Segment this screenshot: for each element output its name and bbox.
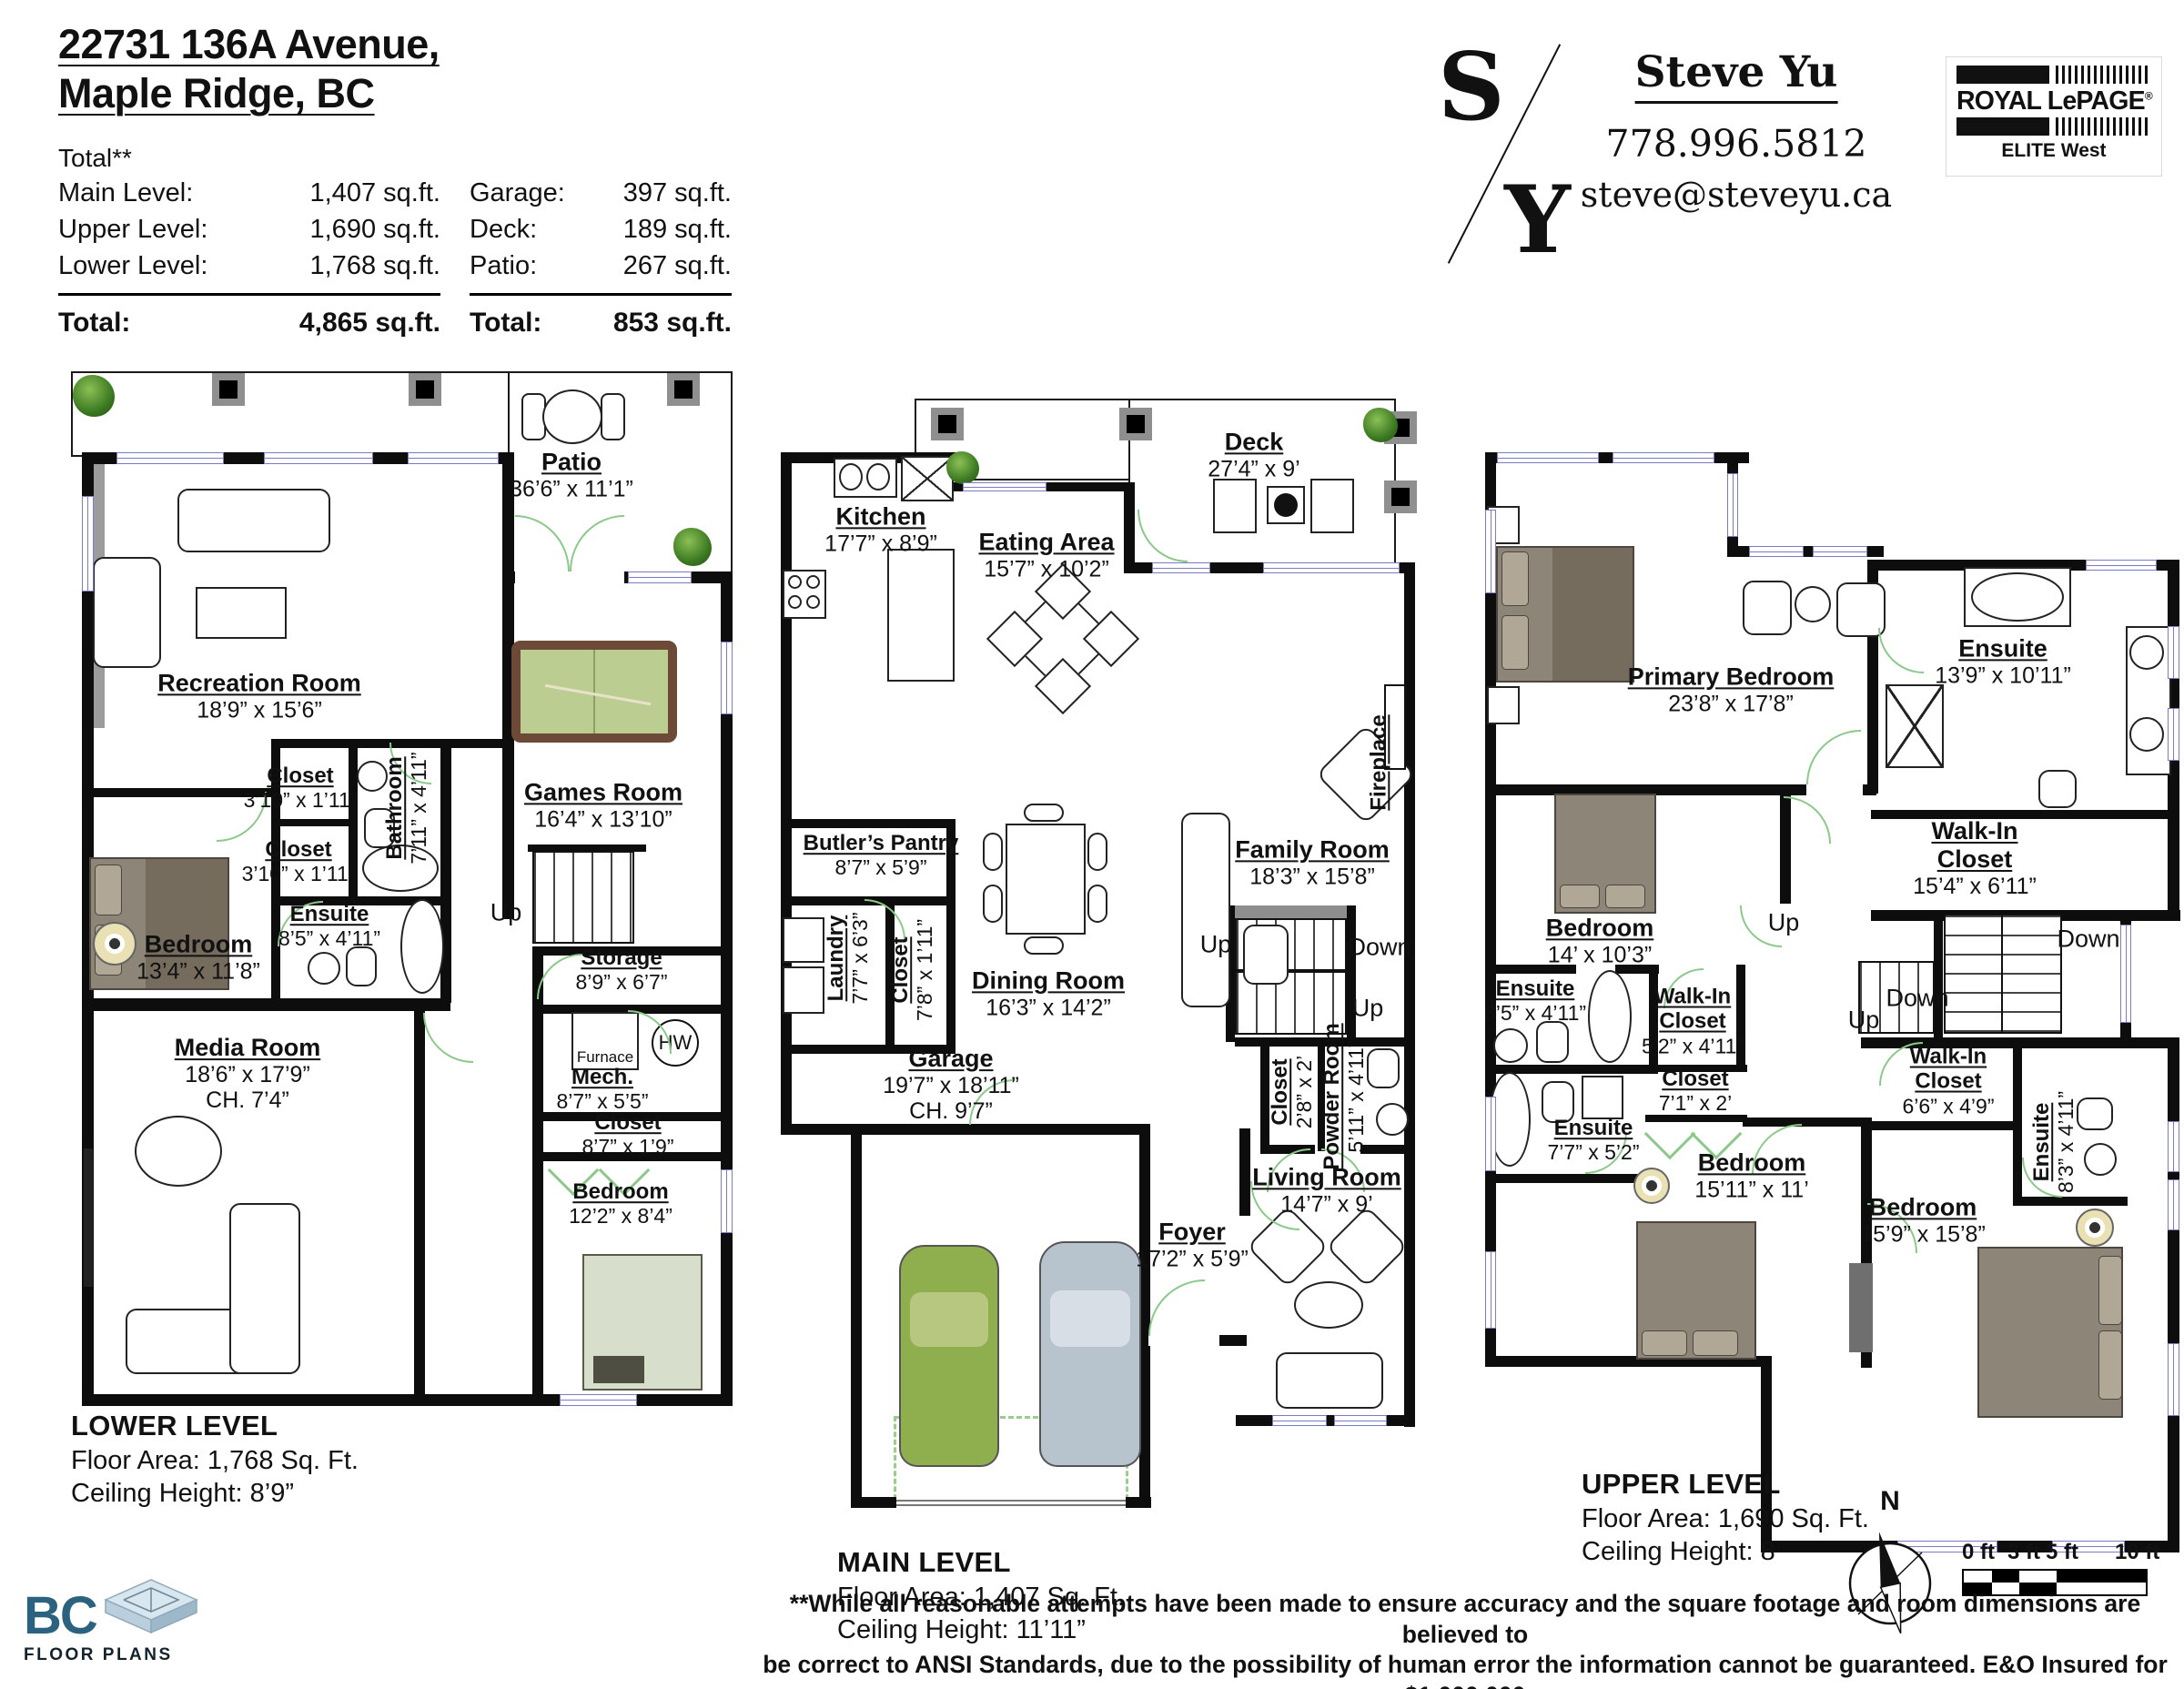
- window: [116, 452, 224, 464]
- window: [721, 1169, 733, 1233]
- coffee-table: [196, 587, 287, 639]
- level-title: LOWER LEVEL: [71, 1409, 359, 1444]
- window: [2168, 1121, 2179, 1172]
- logo-bar: [1956, 66, 2049, 84]
- window: [963, 482, 1046, 491]
- window: [2168, 1343, 2179, 1416]
- room-label-family-room: Family Room18’3” x 15’8”: [1235, 835, 1390, 889]
- row-value: 1,768 sq.ft.: [310, 251, 441, 281]
- fire-table-center: [1274, 493, 1298, 517]
- wardrobe: [1849, 1263, 1873, 1352]
- coffee-table: [1294, 1281, 1363, 1329]
- patio-chair: [601, 393, 625, 440]
- stair-landing: [1235, 905, 1347, 918]
- level-title: UPPER LEVEL: [1582, 1467, 1869, 1502]
- total-label: Total:: [58, 308, 130, 339]
- row-value: 189 sq.ft.: [623, 215, 732, 245]
- room-label-patio: Patio36’6” x 11’1”: [510, 448, 633, 501]
- toilet: [1367, 1048, 1400, 1088]
- window: [408, 452, 499, 464]
- sink-basin: [839, 463, 863, 491]
- stair-label-up: Up: [1768, 909, 1800, 937]
- room-label-walk-in-closet: Walk-In Closet5’2” x 4’11”: [1634, 985, 1751, 1058]
- deck-chair: [1213, 479, 1257, 533]
- room-label-games-room: Games Room16’4” x 13’10”: [524, 778, 682, 832]
- garage-door: [896, 1504, 1126, 1506]
- disclaimer: **While all reasonable attempts have bee…: [753, 1589, 2177, 1689]
- washer: [783, 966, 824, 1014]
- row-label: Patio:: [470, 251, 537, 281]
- room-label-bedroom: Bedroom14’ x 10’3”: [1546, 914, 1654, 967]
- window: [2168, 1179, 2179, 1230]
- window: [1485, 1097, 1496, 1171]
- toilet: [2038, 770, 2077, 808]
- wall: [414, 1085, 425, 1394]
- room-label-living-room: Living Room14’7” x 9’: [1252, 1163, 1401, 1217]
- room-label-bedroom: Bedroom15’11” x 11’: [1694, 1148, 1809, 1202]
- room-label-media-room: Media Room18’6” x 17’9”CH. 7’4”: [175, 1034, 321, 1114]
- room-label-ensuite: Ensuite13’9” x 10’11”: [1935, 634, 2071, 688]
- window: [1485, 510, 1496, 593]
- window: [1613, 452, 1714, 463]
- agent-monogram: S Y: [1436, 42, 1574, 268]
- table-row: Patio:267 sq.ft.: [470, 251, 732, 281]
- burner: [806, 575, 820, 589]
- ceiling-light-icon: [1633, 1168, 1670, 1204]
- wall: [271, 819, 355, 826]
- pillow: [1501, 615, 1529, 670]
- shower: [1886, 684, 1944, 768]
- wall: [1871, 1121, 2017, 1130]
- wall: [82, 998, 450, 1011]
- room-label-closet: Closet2’8” x 2’: [1268, 1056, 1317, 1129]
- window: [2120, 925, 2131, 1023]
- sink-basin: [866, 463, 890, 491]
- wall: [414, 998, 425, 1085]
- plant-icon: [673, 528, 712, 566]
- tv: [84, 1148, 93, 1287]
- window: [1497, 452, 1599, 463]
- table-total-row: Total:853 sq.ft.: [470, 293, 732, 339]
- stair-rail: [2001, 914, 2003, 1034]
- logo-bars: [1956, 66, 2151, 84]
- room-label-closet: Closet8’7” x 1’9”: [582, 1110, 674, 1159]
- door-opening: [1148, 1335, 1219, 1346]
- ottoman: [1243, 925, 1289, 985]
- door-arc: [1784, 796, 1831, 844]
- bc-floorplans-logo: BC FLOOR PLANS: [24, 1573, 206, 1665]
- wall: [1124, 482, 1135, 573]
- bed-blanket: [1552, 548, 1633, 681]
- pillow: [1501, 551, 1529, 606]
- room-label-recreation-room: Recreation Room18’9” x 15’6”: [157, 669, 361, 723]
- wall: [851, 1124, 862, 1508]
- floor-plan-sheet: 22731 136A Avenue, Maple Ridge, BC Total…: [0, 0, 2184, 1689]
- room-label-closet: Closet7’8” x 1’11”: [888, 919, 937, 1021]
- window: [2168, 626, 2179, 679]
- scale-row: [1964, 1571, 2146, 1583]
- room-label-deck: Deck27’4” x 9’: [1208, 428, 1299, 481]
- stair-label-down: Down: [1886, 985, 1948, 1013]
- agent-email: steve@steveyu.ca: [1581, 175, 1892, 215]
- wall: [1934, 910, 1943, 1037]
- bc-logo-text: BC: [24, 1585, 96, 1646]
- patio-table: [542, 389, 602, 444]
- pillow: [1693, 1330, 1738, 1356]
- stair-label-down: Down: [2057, 925, 2119, 954]
- level-ceiling-height: Ceiling Height: 8’9”: [71, 1477, 359, 1510]
- garage-door: [896, 1500, 1126, 1502]
- scale-label: 5 ft: [2046, 1540, 2078, 1565]
- scale-cell: [2019, 1571, 2057, 1583]
- row-label: Upper Level:: [58, 215, 207, 245]
- row-value: 1,690 sq.ft.: [310, 215, 441, 245]
- row-label: Lower Level:: [58, 251, 207, 281]
- burner: [788, 595, 802, 609]
- wall: [1485, 1174, 1653, 1183]
- monogram-y: Y: [1504, 166, 1571, 275]
- window: [82, 496, 94, 592]
- toilet: [2077, 1097, 2113, 1130]
- registered-mark: ®: [2145, 90, 2152, 103]
- wall: [2168, 1037, 2179, 1552]
- room-label-bathroom: Bathroom7’11” x 4’11”: [382, 752, 431, 864]
- sofa: [93, 557, 161, 668]
- side-table: [1795, 586, 1831, 622]
- ceiling-light-icon: [2076, 1209, 2114, 1247]
- laundry-sink: [783, 917, 824, 963]
- scale-label: 3 ft: [2007, 1540, 2040, 1565]
- door-arc: [1878, 628, 1924, 673]
- total-note: Total**: [58, 144, 132, 173]
- chair: [1024, 804, 1064, 822]
- room-label-walk-in-closet: Walk-In Closet15’4” x 6’11”: [1902, 817, 2047, 899]
- patio-post: [667, 373, 700, 406]
- window: [1485, 1251, 1496, 1329]
- stair-label-up: Up: [1352, 995, 1384, 1023]
- table-row: Deck:189 sq.ft.: [470, 215, 732, 245]
- door-arc: [1806, 730, 1861, 784]
- table-row: Upper Level:1,690 sq.ft.: [58, 215, 440, 245]
- room-label-powder-room: Powder Room5’11” x 4’11”: [1319, 1023, 1369, 1169]
- room-label-bedroom: Bedroom15’9” x 15’8”: [1860, 1193, 1986, 1247]
- burner: [788, 575, 802, 589]
- pillow: [95, 865, 122, 915]
- room-label-butlers-pantry: Butler’s Pantry8’7” x 5’9”: [804, 831, 959, 880]
- door-arc: [628, 1010, 672, 1054]
- bc-logo-graphic: BC: [24, 1573, 206, 1645]
- room-label-ensuite: Ensuite8’5” x 4’11”: [278, 902, 380, 951]
- disclaimer-line: be correct to ANSI Standards, due to the…: [753, 1650, 2177, 1689]
- row-value: 397 sq.ft.: [623, 178, 732, 208]
- row-label: Deck:: [470, 215, 537, 245]
- sofa: [1181, 813, 1230, 1007]
- car-grey: [1039, 1241, 1141, 1467]
- window: [628, 571, 692, 583]
- brokerage-name: ROYAL LePAGE®: [1956, 86, 2151, 116]
- nightstand: [1487, 686, 1520, 724]
- pool-table-line: [593, 650, 595, 733]
- room-label-garage: Garage19’7” x 18’11”CH. 9’7”: [883, 1045, 1019, 1125]
- total-value: 4,865 sq.ft.: [299, 308, 440, 339]
- table-total-row: Total:4,865 sq.ft.: [58, 293, 440, 339]
- room-label-foyer: Foyer17’2” x 5’9”: [1136, 1218, 1249, 1271]
- pillow: [1560, 885, 1600, 908]
- armchair: [1743, 581, 1792, 635]
- wall: [2013, 1037, 2022, 1203]
- window: [1152, 562, 1210, 573]
- sectional-sofa: [229, 1203, 300, 1374]
- chair: [1087, 833, 1107, 871]
- window: [2168, 708, 2179, 761]
- sink: [2129, 717, 2164, 752]
- window: [264, 452, 373, 464]
- row-label: Main Level:: [58, 178, 193, 208]
- sink: [2129, 635, 2164, 670]
- room-label-mech: Mech.8’7” x 5’5”: [557, 1065, 649, 1114]
- room-label-kitchen: Kitchen17’7” x 8’9”: [824, 502, 937, 556]
- chair: [1087, 885, 1107, 923]
- car-windshield: [910, 1292, 988, 1347]
- window: [1334, 1415, 1387, 1426]
- room-label-eating-area: Eating Area15’7” x 10’2”: [978, 528, 1114, 582]
- brokerage-office: ELITE West: [1956, 140, 2151, 162]
- level-title: MAIN LEVEL: [837, 1545, 1125, 1581]
- plant-icon: [73, 375, 115, 417]
- deck-chair: [1310, 479, 1354, 533]
- room-label-ensuite: Ensuite7’7” x 5’2”: [1548, 1116, 1640, 1165]
- room-label-ensuite: Ensuite8’3” x 4’11”: [2029, 1091, 2078, 1193]
- chair: [983, 833, 1003, 871]
- loveseat: [1276, 1352, 1383, 1409]
- stair-label-up: Up: [1200, 931, 1232, 959]
- dining-table: [1006, 824, 1086, 935]
- room-label-bedroom: Bedroom12’2” x 8’4”: [569, 1179, 672, 1229]
- logo-stripes: [2056, 66, 2151, 84]
- bathtub-basin: [1971, 572, 2064, 622]
- room-label-laundry: Laundry7’7” x 6’3”: [824, 913, 873, 1005]
- level-ceiling-height: Ceiling Height: 8’: [1582, 1535, 1869, 1568]
- pillow: [2098, 1330, 2122, 1400]
- floor-plans-logo-text: FLOOR PLANS: [24, 1645, 206, 1665]
- table-row: Lower Level:1,768 sq.ft.: [58, 251, 440, 281]
- pillow: [593, 1356, 644, 1383]
- sofa: [177, 489, 330, 552]
- brokerage-name-text: ROYAL LePAGE: [1956, 86, 2145, 116]
- pillow: [1642, 1330, 1687, 1356]
- patio-post: [409, 373, 441, 406]
- room-label-fireplace: Fireplace: [1366, 714, 1390, 810]
- plant-icon: [1363, 408, 1398, 442]
- stair-label-up: Up: [1848, 1006, 1880, 1035]
- scale-cell: [1964, 1571, 1992, 1583]
- bathtub: [400, 899, 444, 994]
- armchair: [135, 1116, 222, 1187]
- staircase: [532, 851, 634, 944]
- sink: [1582, 1076, 1623, 1119]
- pillow: [1605, 885, 1645, 908]
- toilet: [1536, 1021, 1569, 1063]
- stair-label-up: Up: [490, 899, 522, 927]
- total-label: Total:: [470, 308, 541, 339]
- room-label-closet: Closet3’10” x 1’11”: [242, 837, 356, 886]
- wall: [2013, 1197, 2128, 1206]
- wall: [2120, 910, 2179, 921]
- deck-post: [1119, 408, 1152, 440]
- table-row: Main Level:1,407 sq.ft.: [58, 178, 440, 208]
- bathtub: [1588, 970, 1632, 1063]
- pillow: [2098, 1256, 2122, 1325]
- window: [1813, 546, 1867, 557]
- disclaimer-line: **While all reasonable attempts have bee…: [753, 1589, 2177, 1650]
- room-label-closet: Closet7’1” x 2’: [1659, 1067, 1733, 1116]
- window: [2086, 560, 2157, 571]
- door-opening: [515, 571, 624, 583]
- table-row: Garage:397 sq.ft.: [470, 178, 732, 208]
- agent-phone: 778.996.5812: [1606, 122, 1867, 166]
- total-value: 853 sq.ft.: [613, 308, 732, 339]
- sink: [308, 952, 340, 985]
- window: [1263, 562, 1400, 573]
- car-green: [899, 1245, 999, 1467]
- window: [1727, 473, 1738, 537]
- stair-label-down: Down: [1348, 934, 1410, 962]
- deck-post: [931, 408, 964, 440]
- row-label: Garage:: [470, 178, 565, 208]
- ceiling-light-icon: [93, 922, 136, 966]
- window: [721, 642, 733, 714]
- wall: [1239, 1128, 1250, 1216]
- kitchen-island: [887, 549, 955, 682]
- royal-lepage-logo: ROYAL LePAGE® ELITE West: [1946, 56, 2162, 177]
- scale-label: 10 ft: [2115, 1540, 2159, 1565]
- furnace-label: Furnace: [577, 1048, 633, 1067]
- patio-post: [212, 373, 245, 406]
- armchair: [1326, 1206, 1409, 1289]
- door-arc: [423, 1013, 473, 1063]
- window: [1272, 1415, 1327, 1426]
- monogram-s: S: [1438, 33, 1505, 142]
- sink: [1376, 1103, 1409, 1136]
- address-line1: 22731 136A Avenue,: [58, 20, 440, 69]
- row-value: 1,407 sq.ft.: [310, 178, 441, 208]
- deck-post: [1384, 480, 1417, 513]
- window: [1749, 546, 1804, 557]
- level-floor-area: Floor Area: 1,768 Sq. Ft.: [71, 1444, 359, 1477]
- scale-cell: [2057, 1571, 2146, 1583]
- wall: [781, 1124, 1150, 1135]
- sink: [1493, 1028, 1528, 1063]
- window: [560, 1394, 637, 1406]
- logo-bars: [1956, 117, 2151, 136]
- property-address: 22731 136A Avenue, Maple Ridge, BC: [58, 20, 440, 118]
- logo-bar: [1956, 117, 2049, 136]
- room-label-walk-in-closet: Walk-In Closet6’6” x 4’9”: [1890, 1045, 2007, 1118]
- level-footer-upper: UPPER LEVEL Floor Area: 1,690 Sq. Ft. Ce…: [1582, 1467, 1869, 1568]
- room-label-storage: Storage8’9” x 6’7”: [576, 946, 668, 995]
- room-label-closet: Closet3’10” x 1’11”: [244, 764, 358, 813]
- sink: [2084, 1143, 2117, 1176]
- logo-stripes: [2056, 117, 2151, 136]
- scale-label: 0 ft: [1962, 1540, 1995, 1565]
- room-label-ensuite: Ensuite8’5” x 4’11”: [1484, 976, 1586, 1026]
- plant-icon: [946, 451, 979, 484]
- car-windshield: [1050, 1290, 1130, 1347]
- wall: [1743, 1118, 1872, 1127]
- chair: [1024, 936, 1064, 955]
- wall: [781, 819, 955, 828]
- wall: [781, 452, 792, 1135]
- level-floor-area: Floor Area: 1,690 Sq. Ft.: [1582, 1502, 1869, 1535]
- wall: [1360, 1145, 1415, 1154]
- burner: [806, 595, 820, 609]
- room-label-dining-room: Dining Room16’3” x 14’2”: [972, 966, 1125, 1020]
- room-label-primary-bedroom: Primary Bedroom23’8” x 17’8”: [1628, 662, 1835, 716]
- level-footer-lower: LOWER LEVEL Floor Area: 1,768 Sq. Ft. Ce…: [71, 1409, 359, 1510]
- area-table: Main Level:1,407 sq.ft. Upper Level:1,69…: [58, 178, 440, 339]
- chair: [983, 885, 1003, 923]
- address-line2: Maple Ridge, BC: [58, 69, 440, 118]
- room-label-bedroom: Bedroom13’4” x 11’8”: [136, 930, 260, 984]
- door-opening: [1806, 784, 1863, 795]
- staircase: [1944, 914, 2062, 1034]
- toilet: [346, 946, 377, 986]
- scale-cell: [1992, 1571, 2019, 1583]
- garage-door-opening: [896, 1497, 1126, 1508]
- agent-name: Steve Yu: [1635, 47, 1838, 104]
- aux-area-table: Garage:397 sq.ft. Deck:189 sq.ft. Patio:…: [470, 178, 732, 339]
- row-value: 267 sq.ft.: [623, 251, 732, 281]
- door-arc: [1148, 1279, 1205, 1336]
